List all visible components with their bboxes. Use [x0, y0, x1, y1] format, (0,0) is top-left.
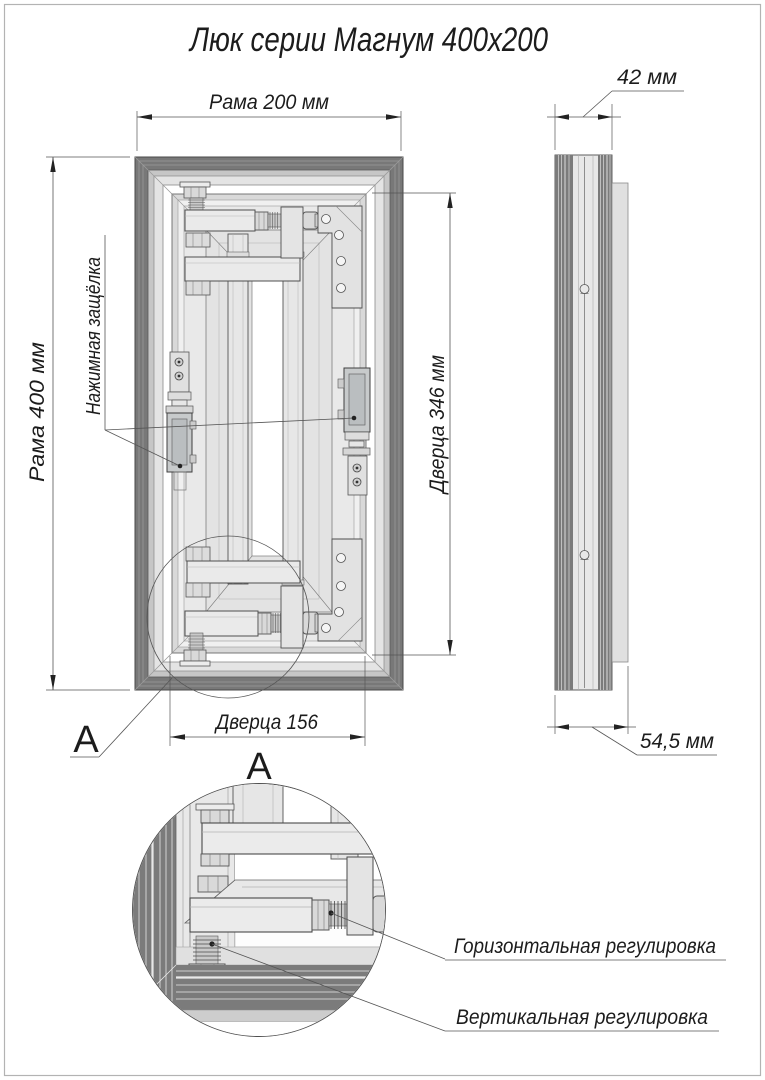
dim-frame-width-label: Рама 200 мм	[209, 91, 329, 114]
dim-depth-top: 42 мм	[547, 66, 684, 150]
drawing-title: Люк серии Магнум 400x200	[188, 21, 548, 59]
top-hex-nut	[184, 187, 206, 198]
door-inner-profile	[206, 230, 332, 612]
detail-view-title: A	[246, 746, 272, 788]
detail-view: A	[133, 746, 727, 1042]
bottom-bracket	[281, 586, 303, 648]
horizontal-adjustment-callout: Горизонтальная регулировка	[328, 910, 726, 960]
profile-screw-bottom	[580, 551, 589, 560]
horizontal-adjustment-label: Горизонтальная регулировка	[454, 935, 716, 958]
dim-depth-top-label: 42 мм	[617, 66, 677, 89]
dim-frame-height: Рама 400 мм	[26, 157, 130, 690]
dim-door-height-label: Дверца 346 мм	[426, 355, 449, 495]
hatch-technical-drawing: Люк серии Магнум 400x200	[0, 0, 765, 1080]
drawing-page: Люк серии Магнум 400x200	[0, 0, 765, 1080]
side-view: 42 мм 54,5 мм	[547, 66, 717, 755]
horizontal-screw-nut	[255, 212, 268, 230]
top-thread	[188, 198, 205, 210]
top-bracket	[281, 207, 303, 258]
dim-frame-width: Рама 200 мм	[137, 91, 401, 151]
side-door-panel	[612, 183, 628, 662]
top-upper-bar	[185, 210, 255, 231]
bottom-upper-bar	[187, 561, 300, 583]
dim-frame-height-label: Рама 400 мм	[26, 342, 49, 482]
detail-marker-letter: A	[73, 719, 99, 761]
profile-screw-top	[580, 285, 589, 294]
dim-door-width-label: Дверца 156	[214, 711, 318, 734]
dim-depth-bottom-label: 54,5 мм	[640, 730, 714, 753]
horizontal-screw-thread	[268, 212, 281, 229]
top-washer	[180, 182, 210, 187]
side-profile	[555, 155, 628, 690]
front-view: Нажимная защёлка Рама 200 мм Рама 400 мм	[26, 91, 456, 761]
bottom-lower-bar	[185, 611, 258, 636]
vertical-adjustment-label: Вертикальная регулировка	[456, 1006, 708, 1029]
latch-label: Нажимная защёлка	[83, 257, 105, 415]
horizontal-screw-nut-bottom	[258, 613, 271, 634]
top-lower-bar	[185, 257, 300, 281]
